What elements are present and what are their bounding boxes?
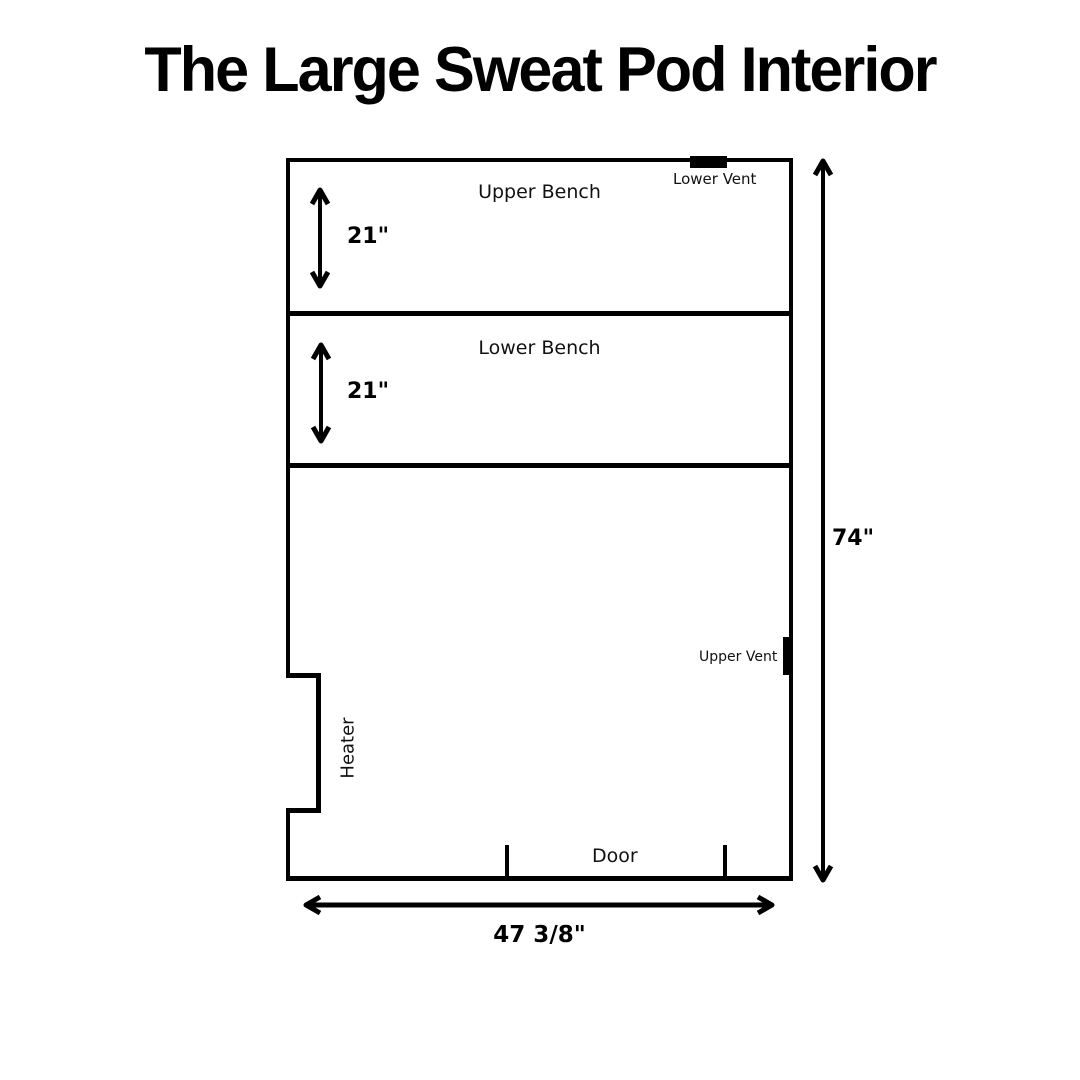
- upper-bench-depth-label: 21": [347, 224, 389, 249]
- door-label: Door: [592, 845, 638, 867]
- lower-bench-label: Lower Bench: [286, 337, 793, 359]
- width-dimension-arrow: [302, 892, 776, 918]
- lower-vent-mark: [690, 156, 727, 168]
- height-dimension-arrow: [810, 157, 836, 884]
- lower-bench-divider: [286, 463, 793, 468]
- pod-outline: [286, 158, 793, 881]
- door-tick-right: [723, 845, 727, 878]
- heater-outline: [286, 673, 321, 813]
- width-dimension-label: 47 3/8": [286, 922, 793, 948]
- door-tick-left: [505, 845, 509, 878]
- lower-vent-label: Lower Vent: [673, 170, 756, 188]
- heater-label: Heater: [338, 717, 359, 778]
- upper-vent-label: Upper Vent: [699, 649, 777, 665]
- upper-bench-divider: [286, 311, 793, 316]
- height-dimension-label: 74": [832, 526, 874, 551]
- upper-bench-depth-arrow: [306, 187, 334, 289]
- upper-vent-mark: [783, 637, 791, 675]
- sweat-pod-diagram: The Large Sweat Pod Interior Upper Bench…: [0, 0, 1080, 1080]
- page-title: The Large Sweat Pod Interior: [16, 34, 1064, 106]
- lower-bench-depth-label: 21": [347, 379, 389, 404]
- lower-bench-depth-arrow: [307, 342, 335, 444]
